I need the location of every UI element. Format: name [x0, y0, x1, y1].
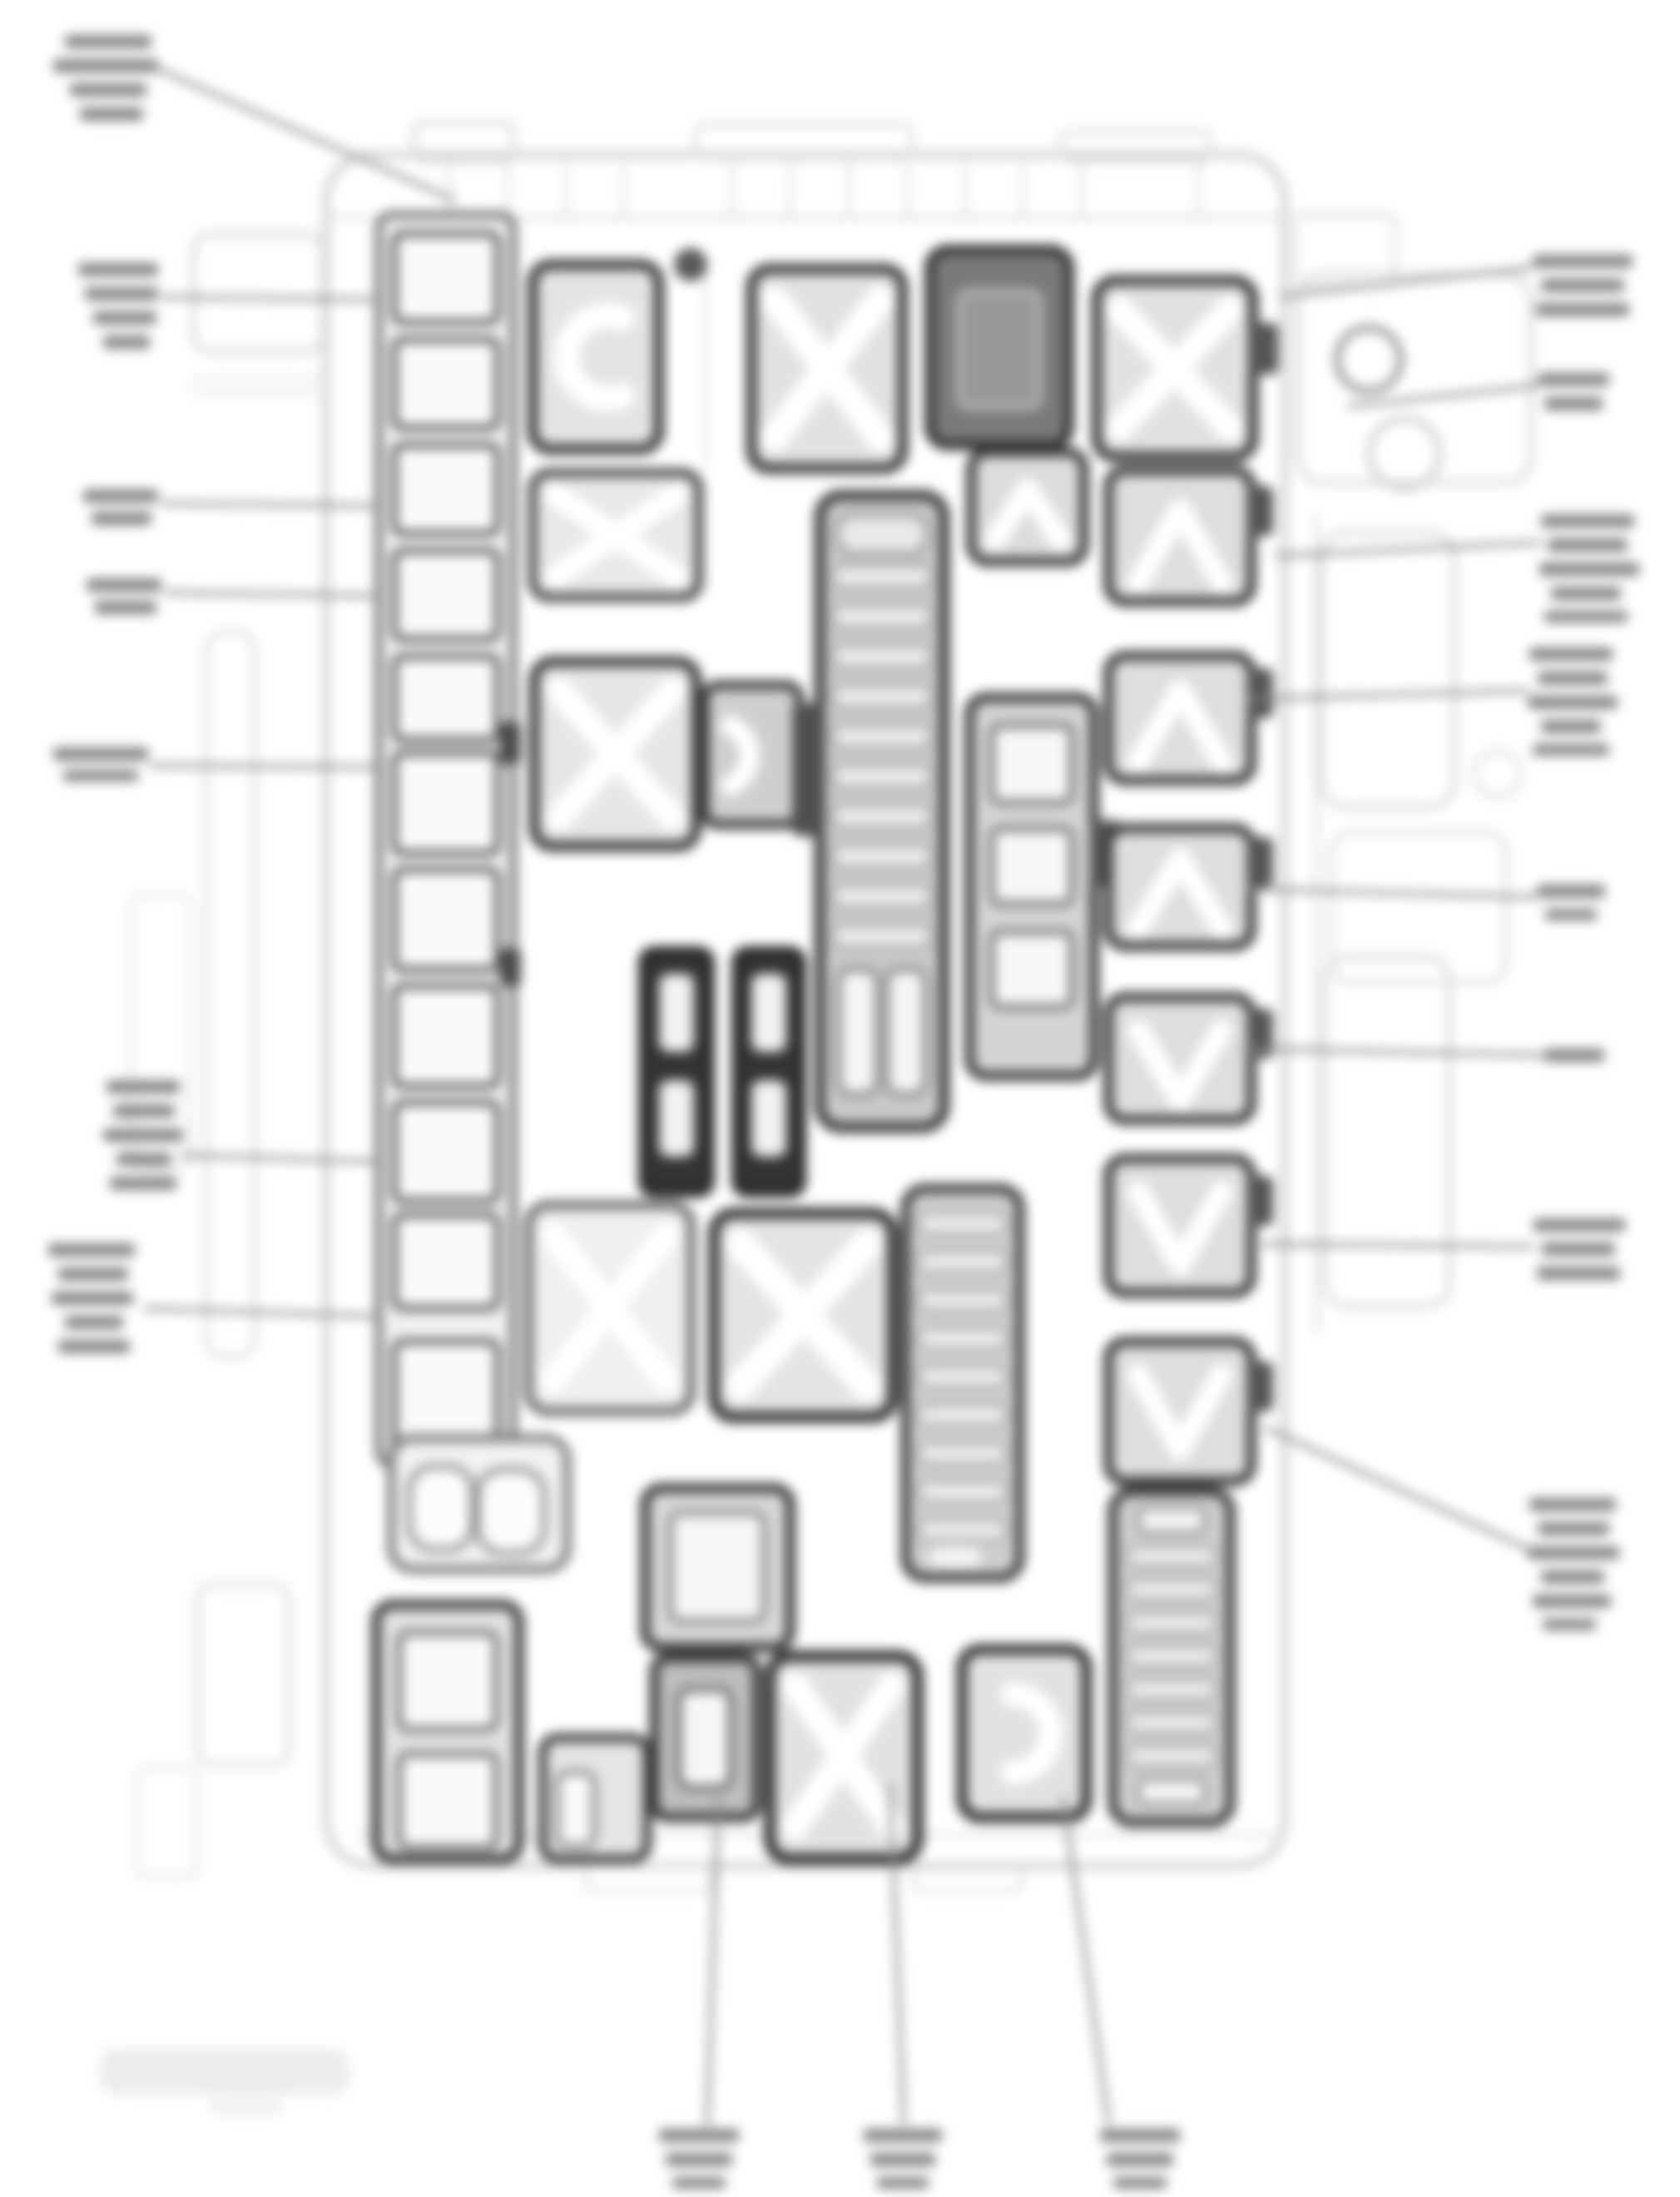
label-right-3-smudge: [1548, 538, 1628, 552]
c-relay-bottom-body: [962, 1649, 1087, 1818]
three-slot-column-slot: [992, 829, 1072, 904]
center-bottom-strip-bar: [919, 1213, 1006, 1234]
label-left-2-smudge: [93, 311, 156, 325]
mid-dark-connector-a-slot: [659, 1080, 694, 1157]
fuse-relay-box-diagram: [0, 0, 1680, 2197]
center-fuse-strip-side-tab: [792, 703, 825, 836]
label-left-6-smudge: [113, 1104, 175, 1118]
diagram-svg: [0, 0, 1680, 2197]
housing-ring-marker: [1337, 328, 1400, 391]
right-relay-3-tab: [1248, 837, 1273, 887]
bottom-right-strip-bar: [1127, 1713, 1216, 1733]
label-right-1-smudge: [1536, 303, 1629, 316]
label-right-1-smudge: [1533, 255, 1633, 268]
oval-block-slot: [409, 1466, 473, 1550]
bottom-right-strip-slot: [1138, 1779, 1205, 1804]
bottom-two-slot-connector-slot: [679, 1689, 731, 1788]
left-fuse-strip-slot: [394, 753, 498, 853]
label-left-6-smudge: [107, 1080, 180, 1094]
label-right-4-smudge: [1533, 744, 1609, 756]
label-left-6-smudge: [103, 1128, 183, 1142]
leader-line-right-7: [1263, 1244, 1532, 1247]
label-left-4-smudge: [87, 578, 161, 592]
left-fuse-strip-slot: [394, 1342, 498, 1450]
center-fuse-strip-cap: [836, 514, 928, 554]
left-fuse-strip-slot: [394, 445, 498, 533]
leader-line-right-4: [1250, 691, 1527, 699]
center-fuse-strip-bar: [835, 766, 929, 787]
label-right-7-smudge: [1537, 1267, 1620, 1280]
center-fuse-strip-slot: [839, 970, 877, 1094]
center-bottom-strip-bar: [919, 1290, 1006, 1311]
label-bottom-3-smudge: [1107, 2153, 1173, 2166]
center-fuse-strip-slot: [887, 970, 925, 1094]
center-bottom-strip-bar: [919, 1405, 1006, 1426]
center-bottom-strip-bar: [919, 1481, 1006, 1502]
label-bottom-2-smudge: [877, 2177, 929, 2189]
label-right-4-smudge: [1528, 696, 1618, 709]
c-relay-top-body: [533, 265, 659, 449]
left-fuse-strip-slot: [394, 551, 498, 639]
label-right-8-smudge: [1543, 1619, 1596, 1630]
mid-dark-connector-b-slot: [751, 974, 786, 1052]
center-bottom-strip-bar: [919, 1328, 1006, 1349]
label-bottom-3-smudge: [1100, 2129, 1180, 2142]
label-left-1-smudge: [80, 107, 143, 121]
bottom-right-strip-bar: [1127, 1646, 1216, 1666]
housing-farleft-bottom: [137, 1768, 197, 1877]
leader-line-left-6: [181, 1155, 379, 1162]
housing-right-flange-big: [1298, 275, 1531, 483]
left-fuse-strip-slot: [394, 234, 498, 322]
label-right-4-smudge: [1529, 647, 1613, 661]
mid-dark-connector-b-slot: [751, 1080, 786, 1157]
leader-line-right-8: [1266, 1428, 1529, 1550]
label-right-1-smudge: [1541, 279, 1624, 292]
label-left-7-smudge: [52, 1292, 133, 1305]
center-bottom-strip-slot: [930, 1546, 980, 1568]
label-bottom-1-smudge: [672, 2177, 726, 2189]
x-relay-top-right-tab: [1250, 323, 1278, 374]
housing-right-circle-faint: [1474, 751, 1521, 797]
label-right-2-smudge: [1544, 397, 1603, 410]
label-right-3-smudge: [1551, 587, 1621, 600]
label-left-4-smudge: [95, 601, 156, 614]
right-relay-1-tab: [1248, 486, 1273, 536]
housing-right-flange-mid: [1321, 533, 1455, 807]
center-fuse-strip-bar: [835, 885, 929, 907]
housing-bottom-tab: [914, 1869, 1022, 1891]
center-fuse-strip-bar: [835, 806, 929, 827]
leader-line-right-5: [1250, 889, 1535, 897]
housing-left-upper-tab: [194, 235, 323, 351]
oval-block-slot: [478, 1470, 544, 1553]
leader-line-left-7: [145, 1308, 381, 1317]
center-bottom-strip-bar: [919, 1366, 1006, 1387]
leader-line-right-6: [1244, 1049, 1544, 1055]
center-fuse-strip-bar: [835, 846, 929, 867]
label-right-5-smudge: [1545, 909, 1597, 920]
three-slot-column-slot: [992, 932, 1072, 1007]
right-relay-6-tab: [1248, 1361, 1273, 1411]
label-left-2-smudge: [85, 287, 158, 300]
bottom-right-strip-bar: [1127, 1546, 1216, 1566]
label-right-5-smudge: [1537, 885, 1605, 898]
left-fuse-strip-slot: [394, 870, 498, 970]
center-fuse-strip-bar: [835, 726, 929, 747]
label-right-8-smudge: [1529, 1498, 1616, 1511]
center-fuse-strip-bar: [835, 646, 929, 667]
label-left-1-smudge: [70, 83, 146, 97]
right-relay-5-tab: [1248, 1176, 1273, 1226]
housing-left-rail: [206, 632, 255, 1356]
bottom-right-strip-bar: [1127, 1679, 1216, 1699]
left-fuse-strip-slot: [394, 1103, 498, 1201]
label-bottom-3-smudge: [1113, 2177, 1167, 2189]
label-right-8-smudge: [1528, 1546, 1619, 1560]
label-left-5-smudge: [53, 747, 148, 761]
two-fuse-block-slot: [399, 1633, 496, 1729]
label-right-3-smudge: [1541, 514, 1634, 528]
center-fuse-strip-bar: [835, 686, 929, 707]
label-right-8-smudge: [1541, 1570, 1604, 1584]
center-bottom-strip-bar: [919, 1252, 1006, 1272]
center-fuse-strip-bar: [835, 606, 929, 627]
housing-ring-faint: [1370, 419, 1440, 488]
leader-line-left-2: [163, 297, 381, 300]
bottom-right-strip-bar: [1127, 1746, 1216, 1766]
housing-right-flange-lower: [1325, 957, 1450, 1307]
label-right-6-smudge: [1544, 1049, 1604, 1062]
label-right-7-smudge: [1542, 1242, 1615, 1256]
label-bottom-2-smudge: [864, 2129, 942, 2142]
fuse-relay-box-diagram-page: [0, 0, 1680, 2197]
label-left-3-smudge: [92, 512, 151, 525]
bottom-connector-block-inner: [671, 1513, 764, 1621]
center-bottom-strip-bar: [919, 1520, 1006, 1540]
label-left-2-smudge: [78, 263, 158, 276]
label-right-4-smudge: [1541, 720, 1601, 733]
leader-line-left-1: [160, 70, 453, 200]
bottom-right-strip-bar: [1127, 1613, 1216, 1633]
label-right-8-smudge: [1538, 1522, 1609, 1535]
label-left-7-smudge: [58, 1267, 128, 1281]
left-fuse-strip-slot: [394, 340, 498, 428]
left-fuse-strip-slot: [394, 1215, 498, 1308]
label-bottom-1-smudge: [666, 2153, 732, 2166]
bottom-right-strip-slot: [1138, 1508, 1205, 1533]
two-fuse-block-slot: [399, 1754, 496, 1847]
left-strip-clip: [499, 949, 521, 986]
label-left-1-smudge: [53, 59, 158, 72]
housing-farleft-small: [131, 895, 190, 1169]
label-right-2-smudge: [1538, 373, 1609, 386]
center-fuse-strip-bar: [835, 566, 929, 588]
left-strip-clip: [499, 722, 521, 764]
label-left-7-smudge: [58, 1340, 130, 1353]
leader-line-left-4: [166, 593, 381, 596]
bottom-small-fuse-slot: [558, 1773, 594, 1846]
center-bottom-strip-bar: [919, 1443, 1006, 1464]
dark-connector-block-inner: [959, 291, 1040, 408]
label-right-7-smudge: [1534, 1218, 1625, 1232]
label-bottom-2-smudge: [870, 2153, 935, 2166]
three-slot-column-slot: [992, 726, 1072, 802]
leader-line-bottom-3: [1063, 1798, 1108, 2122]
leader-line-bottom-1: [707, 1799, 718, 2124]
housing-left-lower-tab: [197, 1585, 289, 1764]
label-right-4-smudge: [1538, 672, 1608, 685]
watermark-smudge: [100, 2049, 349, 2095]
watermark-smudge: [208, 2097, 283, 2115]
left-fuse-strip-slot: [394, 657, 498, 740]
left-fuse-strip-slot: [394, 986, 498, 1086]
leader-line-left-3: [163, 503, 381, 506]
leader-line-left-5: [151, 766, 381, 767]
label-left-1-smudge: [65, 35, 151, 48]
label-left-7-smudge: [48, 1243, 135, 1257]
screw-dot: [674, 248, 707, 281]
label-left-3-smudge: [83, 489, 158, 503]
right-relay-2-tab: [1248, 668, 1273, 718]
label-right-3-smudge: [1539, 563, 1639, 576]
bottom-right-strip-bar: [1127, 1580, 1216, 1599]
mid-dark-connector-a-slot: [659, 974, 694, 1052]
label-left-6-smudge: [116, 1153, 171, 1166]
label-left-2-smudge: [103, 335, 150, 349]
label-right-3-smudge: [1544, 611, 1628, 622]
label-left-5-smudge: [63, 770, 138, 781]
label-left-6-smudge: [110, 1177, 176, 1190]
label-left-7-smudge: [65, 1316, 123, 1329]
label-bottom-1-smudge: [659, 2129, 739, 2142]
center-fuse-strip-bar: [835, 925, 929, 947]
label-right-8-smudge: [1533, 1594, 1611, 1608]
